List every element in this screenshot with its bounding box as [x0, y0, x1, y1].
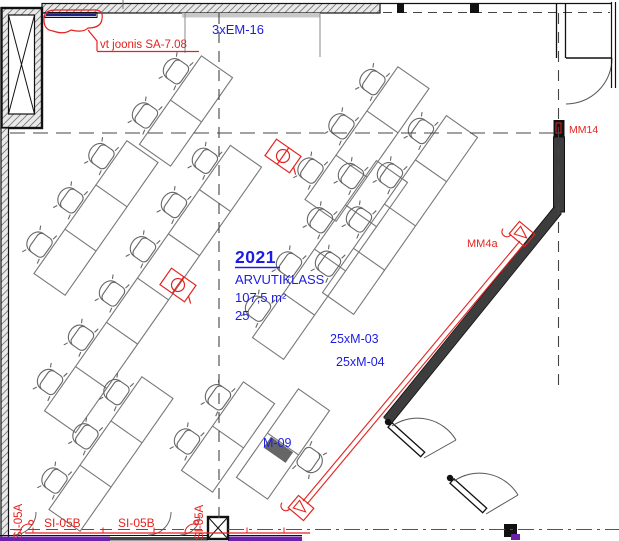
socket-group-2-label: 25xM-04 [336, 355, 385, 369]
revision-note-label: vt joonis SA-7.08 [100, 39, 187, 51]
chair-icon [65, 415, 103, 456]
room-number: 2021 [235, 247, 276, 267]
chair-icon [61, 316, 99, 357]
conduit-1-label: SI-05B [44, 516, 81, 530]
teacher-desk [236, 389, 349, 513]
floor-outlet-icon [160, 268, 202, 306]
chair-icon [370, 154, 408, 195]
riser-mid-label: SI-05A [194, 505, 206, 540]
chair-icon [125, 94, 163, 135]
chair-icon [331, 155, 369, 196]
chair-icon [50, 179, 88, 220]
room-area: 107,5 m² [235, 290, 287, 305]
floor-plan-svg: vt joonis SA-7.08 3xEM-16 2021 ARVUTIKLA… [0, 0, 619, 541]
chair-icon [34, 459, 72, 500]
chair-icon [352, 61, 390, 102]
speaker-device-2-icon [279, 490, 314, 524]
door-arc-2-edge [486, 495, 518, 514]
wall-cable-1 [303, 241, 520, 501]
device-door-label: MM14 [569, 124, 598, 136]
wall-cable-2 [307, 244, 524, 504]
chair-icon [156, 50, 194, 91]
wall-tick-1 [397, 4, 404, 14]
riser-hook-2 [185, 524, 194, 533]
floor-plan-canvas: vt joonis SA-7.08 3xEM-16 2021 ARVUTIKLA… [0, 0, 619, 541]
desk-bank [285, 53, 429, 222]
chair-icon [19, 223, 57, 264]
chair-icon [154, 184, 192, 225]
wall-tick-2 [470, 4, 479, 14]
chair-icon [321, 105, 359, 146]
riser-dot-1 [29, 520, 33, 524]
door-top-arc [566, 58, 612, 104]
chair-icon [167, 420, 205, 461]
walls-layer [0, 0, 616, 541]
chair-icon [92, 272, 130, 313]
cable-tray-label: 3xEM-16 [212, 22, 264, 37]
chair-icon [339, 198, 377, 239]
chair-icon [96, 371, 134, 412]
left-wall [1, 128, 9, 541]
room-name: ARVUTIKLASS [235, 272, 325, 287]
desk-bank [14, 127, 158, 296]
chair-icon [198, 376, 236, 417]
socket-group-1-label: 25xM-03 [330, 332, 379, 346]
chair-icon [81, 135, 119, 176]
desk-bank [29, 363, 173, 532]
desk-bank [24, 131, 261, 432]
desk-bank [161, 368, 274, 492]
floor-outlet-icon [265, 139, 307, 177]
chair-icon [185, 139, 223, 180]
revision-leader [88, 30, 97, 51]
riser-left-label: SI-05A [13, 504, 25, 539]
conduit-2-label: SI-05B [118, 516, 155, 530]
busbar-right [228, 537, 302, 541]
chair-icon [30, 361, 68, 402]
door-leaf-2 [450, 479, 487, 513]
teacher-socket-label: M-09 [263, 436, 292, 450]
top-wall-inner-strip [182, 13, 320, 18]
door-leaf-1 [388, 423, 425, 457]
chair-icon [123, 228, 161, 269]
chair-icon [300, 199, 338, 240]
door-arc-1-edge [424, 440, 456, 458]
text-layer: vt joonis SA-7.08 3xEM-16 2021 ARVUTIKLA… [13, 22, 598, 540]
chair-icon [290, 149, 328, 190]
room-seats: 25 [235, 308, 249, 323]
device-wall-label: MM4a [467, 238, 498, 250]
chair-icon [401, 110, 439, 151]
busbar-stub [511, 534, 520, 540]
top-wall [42, 4, 380, 14]
